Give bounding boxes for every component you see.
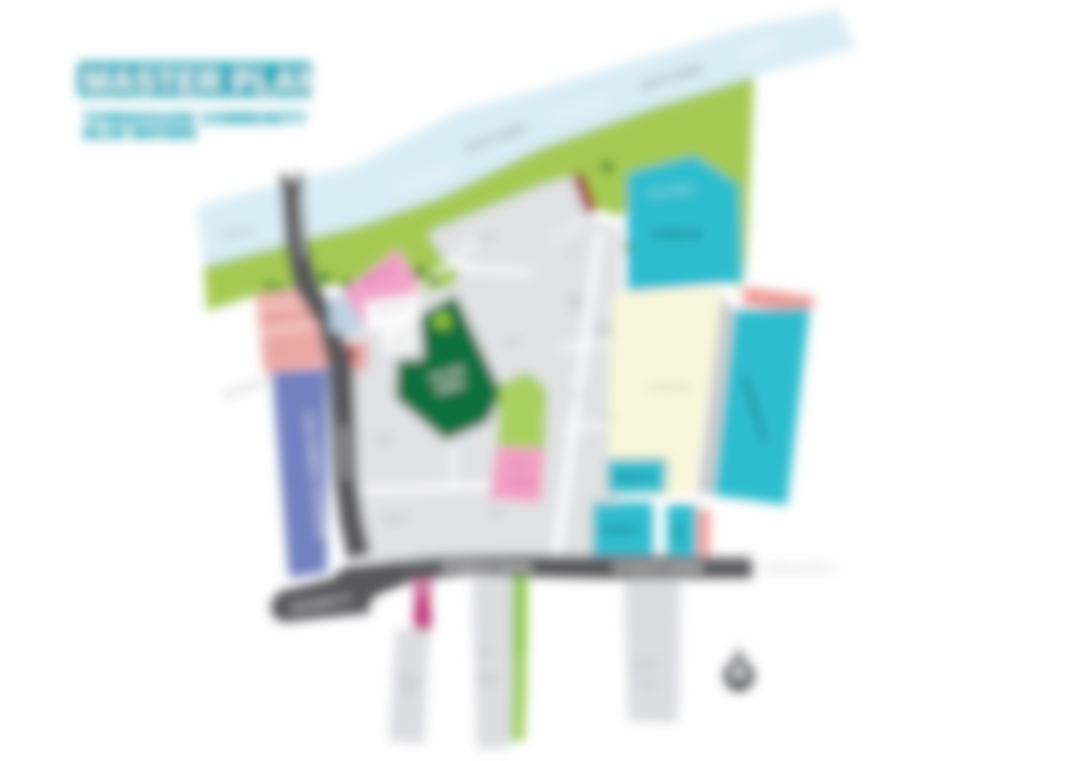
svg-text:stage 6: stage 6	[476, 676, 499, 683]
svg-text:lot 7: lot 7	[506, 338, 522, 347]
svg-text:STAGE 1: STAGE 1	[602, 525, 640, 535]
svg-text:STAGE 2A: STAGE 2A	[613, 473, 653, 482]
svg-text:lot 2: lot 2	[570, 391, 586, 400]
svg-text:future: future	[400, 677, 418, 684]
svg-text:lot 9: lot 9	[490, 508, 506, 517]
svg-text:MASTER PLAN: MASTER PLAN	[85, 65, 321, 98]
svg-text:14: 14	[276, 347, 284, 354]
svg-text:FUT.: FUT.	[511, 463, 528, 472]
svg-text:FIFTEENTH AVENUE: FIFTEENTH AVENUE	[443, 562, 532, 572]
svg-text:12: 12	[272, 312, 280, 319]
svg-text:stage 4: stage 4	[382, 513, 409, 522]
svg-text:STAGE 2B: STAGE 2B	[652, 230, 701, 241]
svg-text:lot 4: lot 4	[602, 416, 615, 423]
svg-text:BLUE WATERS: BLUE WATERS	[84, 126, 197, 142]
svg-text:( existing road 50m ): ( existing road 50m )	[760, 564, 833, 573]
svg-text:future: future	[596, 324, 614, 331]
svg-text:future: future	[567, 295, 585, 302]
svg-text:lot 3: lot 3	[642, 682, 655, 689]
svg-text:stage: stage	[596, 333, 613, 340]
svg-text:lot 5: lot 5	[479, 649, 492, 656]
svg-text:EDMONDSON: EDMONDSON	[339, 426, 350, 479]
svg-text:ST: ST	[672, 523, 682, 532]
svg-text:future st: future st	[634, 662, 659, 669]
svg-text:FUTURE REL.: FUTURE REL.	[648, 385, 694, 392]
svg-text:lots: lots	[404, 687, 415, 694]
svg-text:stage: stage	[567, 304, 584, 311]
svg-text:1B: 1B	[672, 533, 682, 542]
svg-text:FIFTEENTH AVENUE: FIFTEENTH AVENUE	[614, 563, 703, 573]
svg-text:SALES: SALES	[509, 479, 536, 488]
svg-text:TOWNHOUSE COMMUNITY: TOWNHOUSE COMMUNITY	[84, 111, 307, 127]
svg-text:lot 18: lot 18	[374, 434, 394, 443]
